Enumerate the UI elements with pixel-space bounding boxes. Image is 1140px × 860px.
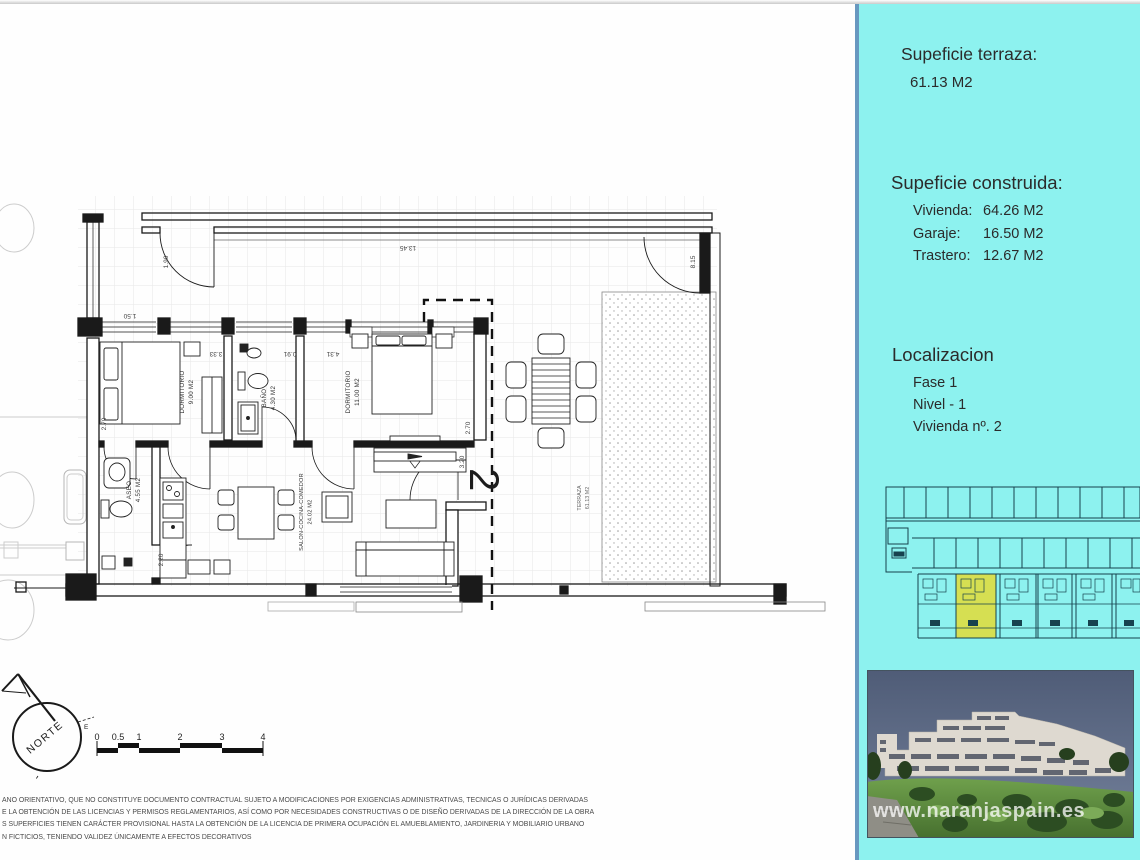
dim-4-31: 4.31 — [326, 350, 339, 357]
disclaimer-line: N FICTICIOS, TENIENDO VALIDEZ ÚNICAMENTE… — [2, 832, 642, 844]
built-row-trastero: Trastero: 12.67 M2 — [913, 245, 1044, 268]
compass-label: NORTE — [24, 719, 65, 757]
built-surface-title: Supeficie construida: — [891, 172, 1063, 194]
info-sidebar: Supeficie terraza: 61.13 M2 Supeficie co… — [855, 0, 1140, 860]
room-area-aseo: 4.55 M2 — [135, 478, 142, 503]
scale-bar: 0 0.5 1 2 3 4 — [94, 732, 265, 756]
built-row-garaje: Garaje: 16.50 M2 — [913, 223, 1044, 246]
dim-3-20: 3.20 — [459, 455, 466, 468]
location-lines: Fase 1 Nivel - 1 Vivienda nº. 2 — [913, 372, 1002, 438]
room-label-dormitorio2: DORMITORIO — [345, 370, 352, 413]
floor-plan-sheet: DORMITORIO 9.00 M2 BAÑO 4.30 M2 DORMITOR… — [0, 0, 855, 860]
location-fase: Fase 1 — [913, 372, 1002, 394]
window-top-edge — [0, 0, 1140, 4]
built-row-vivienda: Vivienda: 64.26 M2 — [913, 200, 1044, 223]
room-label-salon: SALON-COCINA-COMEDOR — [299, 473, 305, 551]
dim-0-91: 0.91 — [283, 350, 296, 357]
dim-1-90: 1.90 — [163, 255, 170, 268]
location-nivel: Nivel - 1 — [913, 394, 1002, 416]
room-area-salon: 24.02 M2 — [308, 500, 314, 525]
dim-2-70-right: 2.70 — [465, 421, 472, 434]
scale-tick-2: 2 — [177, 732, 182, 742]
room-area-bano: 4.30 M2 — [270, 386, 277, 411]
disclaimer-line: ANO ORIENTATIVO, QUE NO CONSTITUYE DOCUM… — [2, 795, 642, 807]
dim-3-33: 3.33 — [209, 350, 222, 357]
compass: NORTE E S — [2, 674, 94, 780]
watermark: www.naranjaspain.es — [872, 800, 1085, 822]
room-area-terraza: 61.13 M2 — [585, 487, 591, 509]
dim-2-20: 2.20 — [158, 553, 165, 566]
building-photo: www.naranjaspain.es — [867, 670, 1134, 838]
unit-number: 2 — [461, 468, 508, 491]
room-label-terraza: TERRAZA — [577, 485, 583, 511]
terrace-surface-title: Supeficie terraza: — [901, 44, 1037, 65]
scale-tick-0: 0 — [94, 732, 99, 742]
room-label-aseo: ASEO — [126, 481, 133, 499]
dim-1-50: 1.50 — [123, 312, 136, 319]
built-surface-rows: Vivienda: 64.26 M2 Garaje: 16.50 M2 Tras… — [913, 200, 1044, 268]
scale-tick-3: 3 — [219, 732, 224, 742]
room-label-bano: BAÑO — [261, 389, 268, 408]
scale-tick-05: 0.5 — [112, 732, 125, 742]
site-plan-thumbnail — [872, 482, 1140, 640]
dim-2-70-left: 2.70 — [101, 417, 108, 430]
terrace-gravel-area — [602, 292, 716, 582]
location-title: Localizacion — [892, 344, 994, 366]
room-label-dormitorio1: DORMITORIO — [179, 370, 186, 413]
disclaimer: ANO ORIENTATIVO, QUE NO CONSTITUYE DOCUM… — [2, 795, 642, 844]
scale-tick-4: 4 — [260, 732, 265, 742]
disclaimer-line: S SUPERFICIES TIENEN CARÁCTER PROVISIONA… — [2, 819, 642, 831]
highlighted-unit — [956, 574, 996, 638]
disclaimer-line: E LA OBTENCIÓN DE LAS LICENCIAS Y PERMIS… — [2, 807, 642, 819]
compass-east-tick: E — [84, 724, 89, 731]
dim-13-45: 13.45 — [399, 244, 416, 251]
dim-8-15: 8.15 — [690, 255, 697, 268]
terrace-surface-value: 61.13 M2 — [910, 74, 973, 91]
scale-tick-1: 1 — [136, 732, 141, 742]
room-area-dormitorio1: 9.00 M2 — [188, 380, 195, 405]
room-area-dormitorio2: 11.00 M2 — [354, 378, 361, 406]
location-vivienda: Vivienda nº. 2 — [913, 416, 1002, 438]
floor-plan-drawing: DORMITORIO 9.00 M2 BAÑO 4.30 M2 DORMITOR… — [0, 0, 855, 780]
